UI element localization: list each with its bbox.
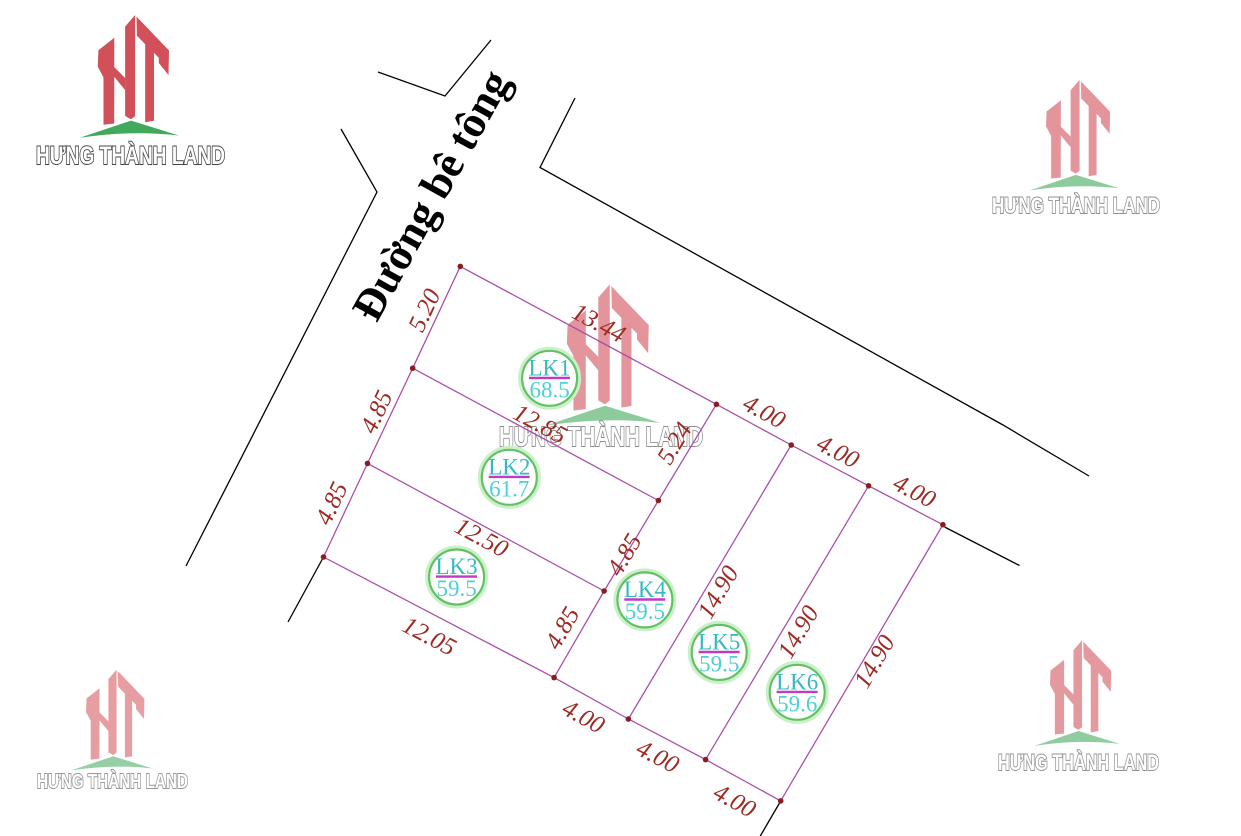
svg-text:HƯNG THÀNH LAND: HƯNG THÀNH LAND — [37, 770, 188, 793]
svg-text:59.5: 59.5 — [436, 576, 476, 601]
svg-text:HƯNG THÀNH LAND: HƯNG THÀNH LAND — [36, 141, 225, 170]
svg-text:61.7: 61.7 — [489, 477, 529, 502]
svg-text:59.6: 59.6 — [777, 692, 817, 717]
svg-text:59.5: 59.5 — [625, 599, 665, 624]
svg-text:HƯNG THÀNH LAND: HƯNG THÀNH LAND — [998, 750, 1159, 775]
svg-text:HƯNG THÀNH LAND: HƯNG THÀNH LAND — [992, 193, 1160, 218]
svg-text:59.5: 59.5 — [699, 652, 739, 677]
svg-text:68.5: 68.5 — [529, 378, 569, 403]
